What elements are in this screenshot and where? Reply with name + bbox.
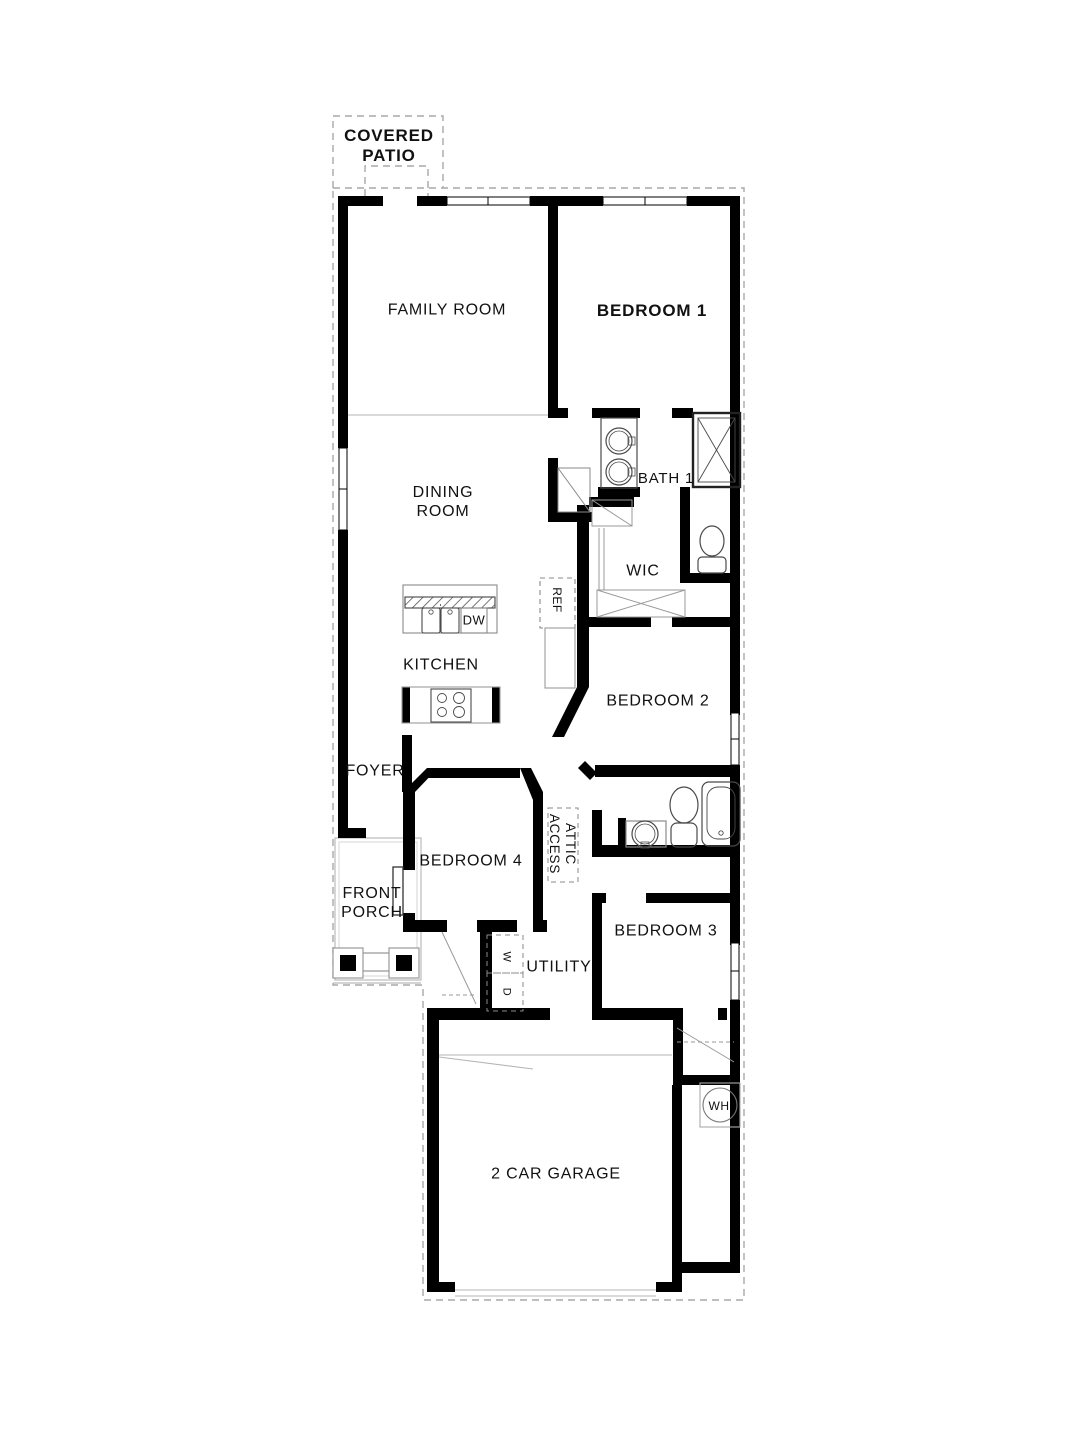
- bath2-fixtures: [626, 782, 740, 848]
- room-label-front-porch: FRONT PORCH: [331, 885, 413, 923]
- porch-column-icon: [389, 948, 419, 978]
- floor-plan-drawing: [0, 0, 1080, 1440]
- room-label-wic: WIC: [603, 563, 683, 582]
- double-vanity-icon: [601, 418, 637, 488]
- room-label-dining-room: DINING ROOM: [402, 484, 484, 522]
- room-label-kitchen: KITCHEN: [361, 657, 521, 676]
- window-icon: [731, 713, 739, 765]
- stove-icon: [431, 689, 471, 722]
- porch-column-icon: [333, 948, 363, 978]
- washer-label: W: [500, 952, 513, 963]
- window-icon: [447, 197, 530, 205]
- window-icon: [339, 448, 347, 530]
- water-heater-label: WH: [709, 1099, 730, 1113]
- counter: [545, 628, 575, 688]
- toilet-icon: [698, 526, 726, 573]
- room-label-garage: 2 CAR GARAGE: [426, 1166, 686, 1185]
- room-label-bedroom-1: BEDROOM 1: [542, 301, 762, 321]
- vanity-sink-icon: [626, 821, 666, 848]
- refrigerator-label: REF: [550, 587, 564, 613]
- dishwasher-label: DW: [463, 612, 486, 627]
- window-icon: [731, 943, 739, 1000]
- linen-closet-icon: [558, 468, 590, 512]
- range-counter: [402, 687, 500, 723]
- room-label-foyer: FOYER: [320, 763, 430, 782]
- room-label-bedroom-4: BEDROOM 4: [361, 853, 581, 872]
- dryer-label: D: [500, 988, 513, 996]
- wic-shelving: [592, 500, 685, 617]
- room-label-covered-patio: COVERED PATIO: [333, 126, 445, 166]
- walls: [338, 196, 740, 1292]
- room-label-bedroom-2: BEDROOM 2: [548, 693, 768, 712]
- floor-plan: COVERED PATIO FAMILY ROOM BEDROOM 1 BATH…: [0, 0, 1080, 1440]
- room-label-utility: UTILITY: [494, 959, 624, 978]
- room-label-bath-1: BATH 1: [635, 470, 697, 488]
- room-label-family-room: FAMILY ROOM: [337, 302, 557, 321]
- room-label-bedroom-3: BEDROOM 3: [556, 923, 776, 942]
- window-icon: [603, 197, 687, 205]
- room-label-attic-access: ATTIC ACCESS: [546, 804, 578, 884]
- toilet-icon: [670, 787, 698, 847]
